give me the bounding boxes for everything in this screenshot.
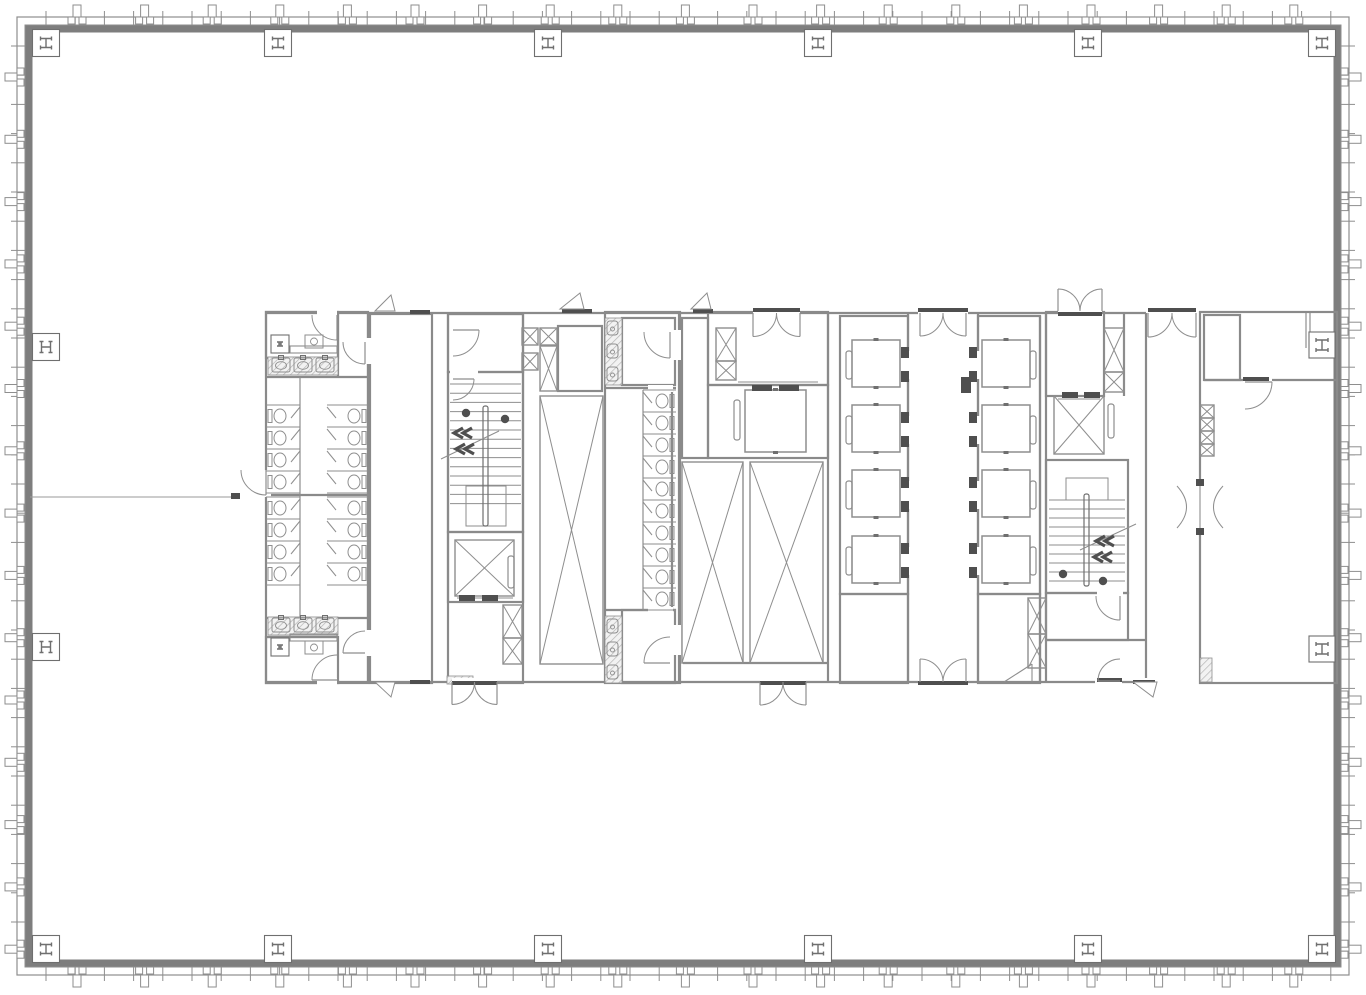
mullion-square xyxy=(17,193,24,200)
door-swing-arc xyxy=(644,332,670,358)
mullion-square xyxy=(406,17,413,24)
mullion-square xyxy=(349,967,356,974)
stall-door-leaf xyxy=(291,521,300,532)
dark-threshold xyxy=(901,567,909,578)
mullion-square xyxy=(338,967,345,974)
stair-post-dot xyxy=(462,409,470,417)
mullion-square xyxy=(136,17,143,24)
mullion-square xyxy=(890,17,897,24)
wc-bowl xyxy=(274,501,286,515)
cabin-door-tick xyxy=(1004,468,1009,471)
wc-tank xyxy=(362,432,366,445)
mullion-square xyxy=(17,380,24,387)
mullion-square xyxy=(1025,967,1032,974)
dark-threshold xyxy=(562,309,592,313)
facade-stub xyxy=(5,696,17,704)
facade-stub xyxy=(141,975,149,987)
mullion-square xyxy=(755,17,762,24)
stair-1-anteroom xyxy=(448,314,523,372)
mullion-square xyxy=(958,967,965,974)
elevator-guide-rail xyxy=(846,481,852,509)
wc-bowl xyxy=(348,431,360,445)
dark-threshold xyxy=(901,436,909,447)
wc-bowl xyxy=(348,409,360,423)
mullion-square xyxy=(1341,951,1348,958)
dark-threshold xyxy=(482,595,498,601)
dark-threshold xyxy=(1196,479,1204,486)
elevator-guide-rail xyxy=(846,416,852,444)
wc-bowl xyxy=(656,504,668,518)
duct-room-top xyxy=(558,326,602,391)
duct-strip xyxy=(682,318,708,458)
annex-room-small xyxy=(1204,315,1240,380)
wc-bowl xyxy=(348,545,360,559)
stall-door-leaf xyxy=(643,590,652,601)
wc-tank xyxy=(268,568,272,581)
dark-threshold xyxy=(901,543,909,554)
east-washroom-anteroom-s xyxy=(622,610,675,683)
mullion-square xyxy=(1341,453,1348,460)
facade-stub xyxy=(73,5,81,17)
mullion-square xyxy=(79,17,86,24)
stall-door-leaf xyxy=(291,499,300,510)
stall-door-leaf xyxy=(643,480,652,491)
wc-bowl xyxy=(274,545,286,559)
mullion-square xyxy=(17,878,24,885)
mullion-square xyxy=(1285,17,1292,24)
door-swing-arc xyxy=(343,631,365,653)
dark-threshold xyxy=(1084,392,1100,398)
facade-stub xyxy=(1222,5,1230,17)
facade-stub xyxy=(411,975,419,987)
facade-stub xyxy=(1222,975,1230,987)
floor-plan-canvas xyxy=(0,0,1366,995)
mullion-square xyxy=(1341,889,1348,896)
core-walls-layer xyxy=(231,308,1337,687)
mop-sink xyxy=(305,641,323,654)
facade-stub xyxy=(1349,135,1361,143)
facade-stub xyxy=(1019,5,1027,17)
facade-stub xyxy=(343,5,351,17)
door-swing-arc xyxy=(453,330,479,356)
mullion-square xyxy=(1341,68,1348,75)
stall-door-leaf xyxy=(327,429,336,440)
stall-door-leaf xyxy=(327,499,336,510)
mullion-square xyxy=(17,504,24,511)
stall-door-leaf xyxy=(291,451,300,462)
elevator-cabin xyxy=(852,340,900,387)
facade-stub xyxy=(479,5,487,17)
mullion-square xyxy=(541,17,548,24)
mullion-square xyxy=(823,17,830,24)
facade-stub xyxy=(1349,883,1361,891)
facade-stub xyxy=(1155,5,1163,17)
wc-bowl xyxy=(348,523,360,537)
mullion-square xyxy=(68,17,75,24)
stall-door-leaf xyxy=(643,568,652,579)
mullion-square xyxy=(1341,130,1348,137)
wc-bowl xyxy=(656,438,668,452)
double-acting-door xyxy=(1177,486,1187,528)
facade-stub xyxy=(546,975,554,987)
dark-threshold xyxy=(901,371,909,382)
stall-door-leaf xyxy=(327,543,336,554)
elevator-guide-rail xyxy=(846,547,852,575)
dark-threshold xyxy=(693,309,713,313)
mullion-square xyxy=(1161,17,1168,24)
facade-stub xyxy=(5,634,17,642)
elevator-cabin xyxy=(745,390,806,452)
door-swing-arc xyxy=(644,637,670,663)
facade-stub xyxy=(1349,73,1361,81)
facade-stub xyxy=(1290,975,1298,987)
mullion-square xyxy=(17,391,24,398)
dark-threshold xyxy=(969,501,977,512)
door-opening xyxy=(1097,590,1123,597)
mullion-square xyxy=(1150,967,1157,974)
mullion-square xyxy=(687,17,694,24)
elevator-cabin xyxy=(982,405,1030,452)
doors-layer xyxy=(241,289,1272,705)
mullion-square xyxy=(744,967,751,974)
stall-door-leaf xyxy=(327,451,336,462)
elevator-cabin xyxy=(852,536,900,583)
elevator-guide-rail xyxy=(1030,351,1036,379)
mullion-square xyxy=(17,629,24,636)
dark-threshold xyxy=(459,595,475,601)
hatched-wall xyxy=(1200,658,1212,682)
mullion-square xyxy=(17,453,24,460)
dark-threshold xyxy=(918,308,968,312)
mullion-square xyxy=(812,967,819,974)
wc-bowl xyxy=(656,570,668,584)
wc-bowl xyxy=(656,460,668,474)
wc-bowl xyxy=(274,453,286,467)
dark-threshold xyxy=(1196,528,1204,535)
mullion-square xyxy=(1082,17,1089,24)
mullion-square xyxy=(271,17,278,24)
wc-tank xyxy=(268,432,272,445)
elevator-guide-rail xyxy=(1030,416,1036,444)
elevator-guide-rail xyxy=(734,400,740,440)
facade-stub xyxy=(5,385,17,393)
wc-bowl xyxy=(274,431,286,445)
elevator-cabin xyxy=(852,470,900,517)
dark-threshold xyxy=(969,477,977,488)
wc-tank xyxy=(362,568,366,581)
mullion-square xyxy=(541,967,548,974)
mullion-square xyxy=(1341,266,1348,273)
facade-stub xyxy=(141,5,149,17)
facade-stub xyxy=(5,883,17,891)
mullion-square xyxy=(890,967,897,974)
mullion-square xyxy=(1341,255,1348,262)
facade-stub xyxy=(817,5,825,17)
mullion-square xyxy=(676,967,683,974)
mullion-square xyxy=(1341,141,1348,148)
stair-post-dot xyxy=(501,415,509,423)
perimeter-curtain-wall xyxy=(5,5,1361,987)
mullion-square xyxy=(17,566,24,573)
mullion-square xyxy=(17,753,24,760)
stall-door-leaf xyxy=(291,543,300,554)
mullion-square xyxy=(17,328,24,335)
facade-stub xyxy=(411,5,419,17)
wc-bowl xyxy=(274,409,286,423)
mullion-square xyxy=(17,577,24,584)
wc-tank xyxy=(268,546,272,559)
mullion-square xyxy=(282,17,289,24)
mullion-square xyxy=(1150,17,1157,24)
wc-tank xyxy=(268,524,272,537)
stall-door-leaf xyxy=(327,407,336,418)
dark-threshold xyxy=(969,543,977,554)
wc-tank xyxy=(268,502,272,515)
mullion-square xyxy=(68,967,75,974)
mullion-square xyxy=(203,967,210,974)
mullion-square xyxy=(17,940,24,947)
facade-stub xyxy=(208,975,216,987)
mullion-square xyxy=(744,17,751,24)
door-opening xyxy=(673,625,681,655)
dark-threshold xyxy=(901,477,909,488)
facade-stub xyxy=(5,821,17,829)
mullion-square xyxy=(1217,17,1224,24)
door-opening xyxy=(450,369,478,376)
mullion-square xyxy=(1341,193,1348,200)
stall-door-leaf xyxy=(643,392,652,403)
stall-door-leaf xyxy=(643,546,652,557)
mullion-square xyxy=(17,79,24,86)
room-below-bank-west xyxy=(840,594,908,683)
facade-stub xyxy=(1349,198,1361,206)
mullion-square xyxy=(1341,878,1348,885)
facade-stub xyxy=(681,975,689,987)
mop-sink-drain xyxy=(311,644,318,651)
mullion-square xyxy=(1341,515,1348,522)
mullion-square xyxy=(1014,967,1021,974)
door-leaf-triangle xyxy=(375,682,395,697)
wc-bowl xyxy=(274,475,286,489)
mullion-square xyxy=(1228,17,1235,24)
mullion-square xyxy=(485,17,492,24)
elevator-guide-rail xyxy=(1030,547,1036,575)
cabin-door-tick xyxy=(1004,534,1009,537)
mullion-square xyxy=(1341,629,1348,636)
mullion-square xyxy=(1341,391,1348,398)
mullion-square xyxy=(1217,967,1224,974)
mullion-square xyxy=(271,967,278,974)
door-opening xyxy=(317,308,337,317)
mullion-square xyxy=(17,827,24,834)
mullion-square xyxy=(282,967,289,974)
lobby-vestibule-n xyxy=(708,312,828,385)
mullion-square xyxy=(609,967,616,974)
wc-bowl xyxy=(348,475,360,489)
cabin-door-tick xyxy=(874,468,879,471)
cabin-door-tick xyxy=(773,451,778,454)
door-swing-arc xyxy=(312,315,337,340)
facade-stub xyxy=(546,5,554,17)
dark-threshold xyxy=(901,412,909,423)
detail-line xyxy=(1004,664,1032,682)
mullion-square xyxy=(17,442,24,449)
elevator-cabin xyxy=(852,405,900,452)
stair-post-dot xyxy=(1059,570,1067,578)
facade-stub xyxy=(1155,975,1163,987)
mullion-square xyxy=(17,317,24,324)
facade-stub xyxy=(343,975,351,987)
mullion-square xyxy=(1341,640,1348,647)
facade-stub xyxy=(749,975,757,987)
door-opening xyxy=(317,678,337,687)
mullion-square xyxy=(1341,204,1348,211)
wc-bowl xyxy=(348,501,360,515)
mullion-square xyxy=(947,17,954,24)
facade-stub xyxy=(952,5,960,17)
mullion-square xyxy=(609,17,616,24)
mullion-square xyxy=(552,967,559,974)
mullion-square xyxy=(1341,827,1348,834)
dark-threshold xyxy=(779,385,799,391)
mullion-square xyxy=(17,889,24,896)
door-opening xyxy=(365,630,372,656)
double-acting-door xyxy=(1214,486,1224,528)
mullion-square xyxy=(958,17,965,24)
mullion-square xyxy=(474,17,481,24)
mullion-square xyxy=(17,130,24,137)
wc-bowl xyxy=(348,567,360,581)
facade-stub xyxy=(5,945,17,953)
stall-door-leaf xyxy=(327,521,336,532)
service-room-long xyxy=(370,314,432,683)
elevator-guide-rail xyxy=(1108,404,1114,438)
wc-tank xyxy=(268,454,272,467)
stall-door-leaf xyxy=(643,524,652,535)
elevator-guide-rail xyxy=(846,351,852,379)
mullion-square xyxy=(1341,940,1348,947)
facade-stub xyxy=(1349,945,1361,953)
facade-stub xyxy=(1349,509,1361,517)
elevator-bank-west xyxy=(840,316,908,594)
door-opening xyxy=(673,330,681,360)
facade-stub xyxy=(5,198,17,206)
stair-landing xyxy=(1066,478,1108,500)
mullion-square xyxy=(1341,577,1348,584)
double-door-arc xyxy=(1080,289,1102,311)
mullion-square xyxy=(1341,566,1348,573)
mullion-square xyxy=(214,17,221,24)
dark-threshold xyxy=(969,567,977,578)
elevator-guide-rail xyxy=(508,556,514,588)
stall-door-leaf xyxy=(643,414,652,425)
facade-stub xyxy=(5,758,17,766)
dark-threshold xyxy=(1148,308,1196,312)
dark-threshold xyxy=(901,501,909,512)
cabin-door-tick xyxy=(1004,451,1009,454)
facade-stub xyxy=(1019,975,1027,987)
mullion-square xyxy=(17,951,24,958)
facade-stub xyxy=(5,135,17,143)
facade-stub xyxy=(276,975,284,987)
mullion-square xyxy=(1014,17,1021,24)
mullion-square xyxy=(1341,691,1348,698)
facade-stub xyxy=(1087,5,1095,17)
mullion-square xyxy=(136,967,143,974)
mullion-square xyxy=(1082,967,1089,974)
stall-door-leaf xyxy=(643,458,652,469)
mullion-square xyxy=(17,764,24,771)
wc-bowl xyxy=(656,394,668,408)
mullion-square xyxy=(1341,702,1348,709)
mullion-square xyxy=(214,967,221,974)
mullion-square xyxy=(1228,967,1235,974)
dark-threshold xyxy=(410,680,430,684)
facade-stub xyxy=(614,5,622,17)
mullion-square xyxy=(687,967,694,974)
facade-stub xyxy=(1290,5,1298,17)
room-k-north xyxy=(1046,312,1104,396)
wc-tank xyxy=(362,546,366,559)
mullion-square xyxy=(17,515,24,522)
mullion-square xyxy=(823,967,830,974)
dark-threshold xyxy=(1058,312,1102,316)
wc-bowl xyxy=(348,453,360,467)
stall-door-leaf xyxy=(291,473,300,484)
facade-stub xyxy=(208,5,216,17)
cabin-door-tick xyxy=(874,338,879,341)
dark-threshold xyxy=(969,436,977,447)
wc-bowl xyxy=(656,416,668,430)
outer-wall-line xyxy=(17,17,1349,975)
dark-threshold xyxy=(901,347,909,358)
mullion-square xyxy=(879,17,886,24)
facade-stub xyxy=(479,975,487,987)
wc-tank xyxy=(362,524,366,537)
service-elevator-room xyxy=(708,385,828,458)
mullion-square xyxy=(17,640,24,647)
facade-stub xyxy=(614,975,622,987)
stall-door-leaf xyxy=(643,436,652,447)
door-leaf-triangle xyxy=(1133,682,1157,697)
facade-stub xyxy=(1349,260,1361,268)
mullion-square xyxy=(1093,17,1100,24)
facade-stub xyxy=(5,73,17,81)
dark-threshold xyxy=(752,385,772,391)
stair-post-dot xyxy=(1099,577,1107,585)
facade-stub xyxy=(884,975,892,987)
wc-tank xyxy=(362,502,366,515)
wc-bowl xyxy=(274,567,286,581)
wc-bowl xyxy=(274,523,286,537)
mullion-square xyxy=(1341,317,1348,324)
mullion-square xyxy=(1093,967,1100,974)
hatched-wall xyxy=(605,318,622,385)
mullion-square xyxy=(406,967,413,974)
mullion-square xyxy=(947,967,954,974)
mullion-square xyxy=(1285,967,1292,974)
east-washroom-anteroom-n xyxy=(622,318,675,385)
wc-bowl xyxy=(656,548,668,562)
mullion-square xyxy=(17,255,24,262)
mullion-square xyxy=(17,702,24,709)
mullion-square xyxy=(879,967,886,974)
dark-threshold xyxy=(753,308,800,312)
cabin-door-tick xyxy=(874,516,879,519)
door-swing-arc xyxy=(453,379,474,400)
mullion-square xyxy=(338,17,345,24)
mullion-square xyxy=(17,204,24,211)
